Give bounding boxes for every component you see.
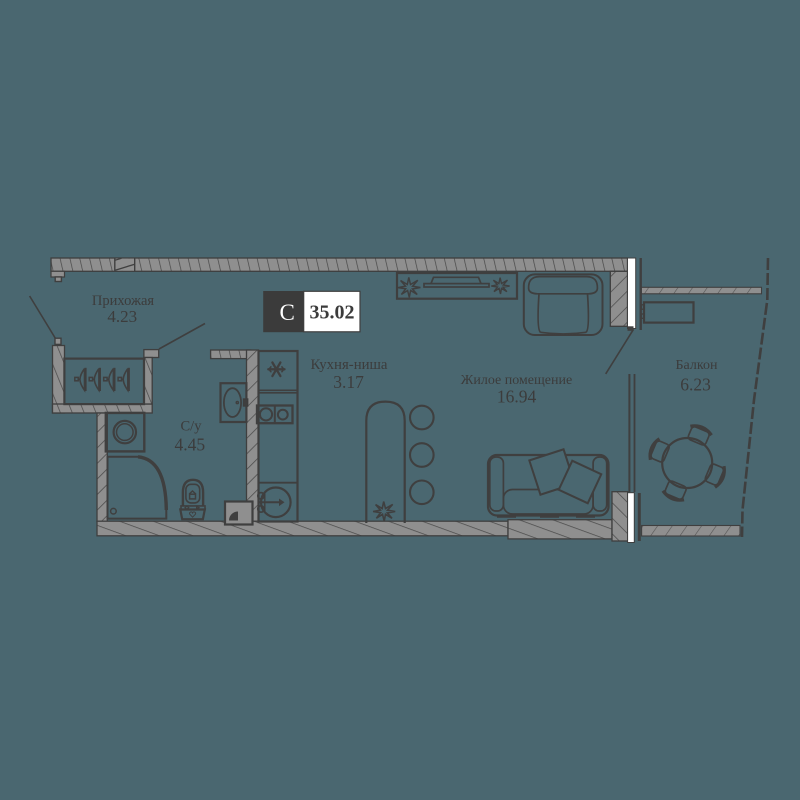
svg-text:Балкон: Балкон [676,358,718,373]
svg-text:16.94: 16.94 [497,387,537,407]
svg-text:С/у: С/у [181,419,203,435]
svg-text:35.02: 35.02 [310,302,355,324]
svg-text:4.23: 4.23 [107,307,137,326]
svg-text:3.17: 3.17 [333,372,364,392]
svg-text:С: С [280,300,295,325]
svg-text:6.23: 6.23 [680,374,711,394]
svg-text:4.45: 4.45 [174,434,205,454]
svg-text:Кухня-ниша: Кухня-ниша [310,357,387,373]
